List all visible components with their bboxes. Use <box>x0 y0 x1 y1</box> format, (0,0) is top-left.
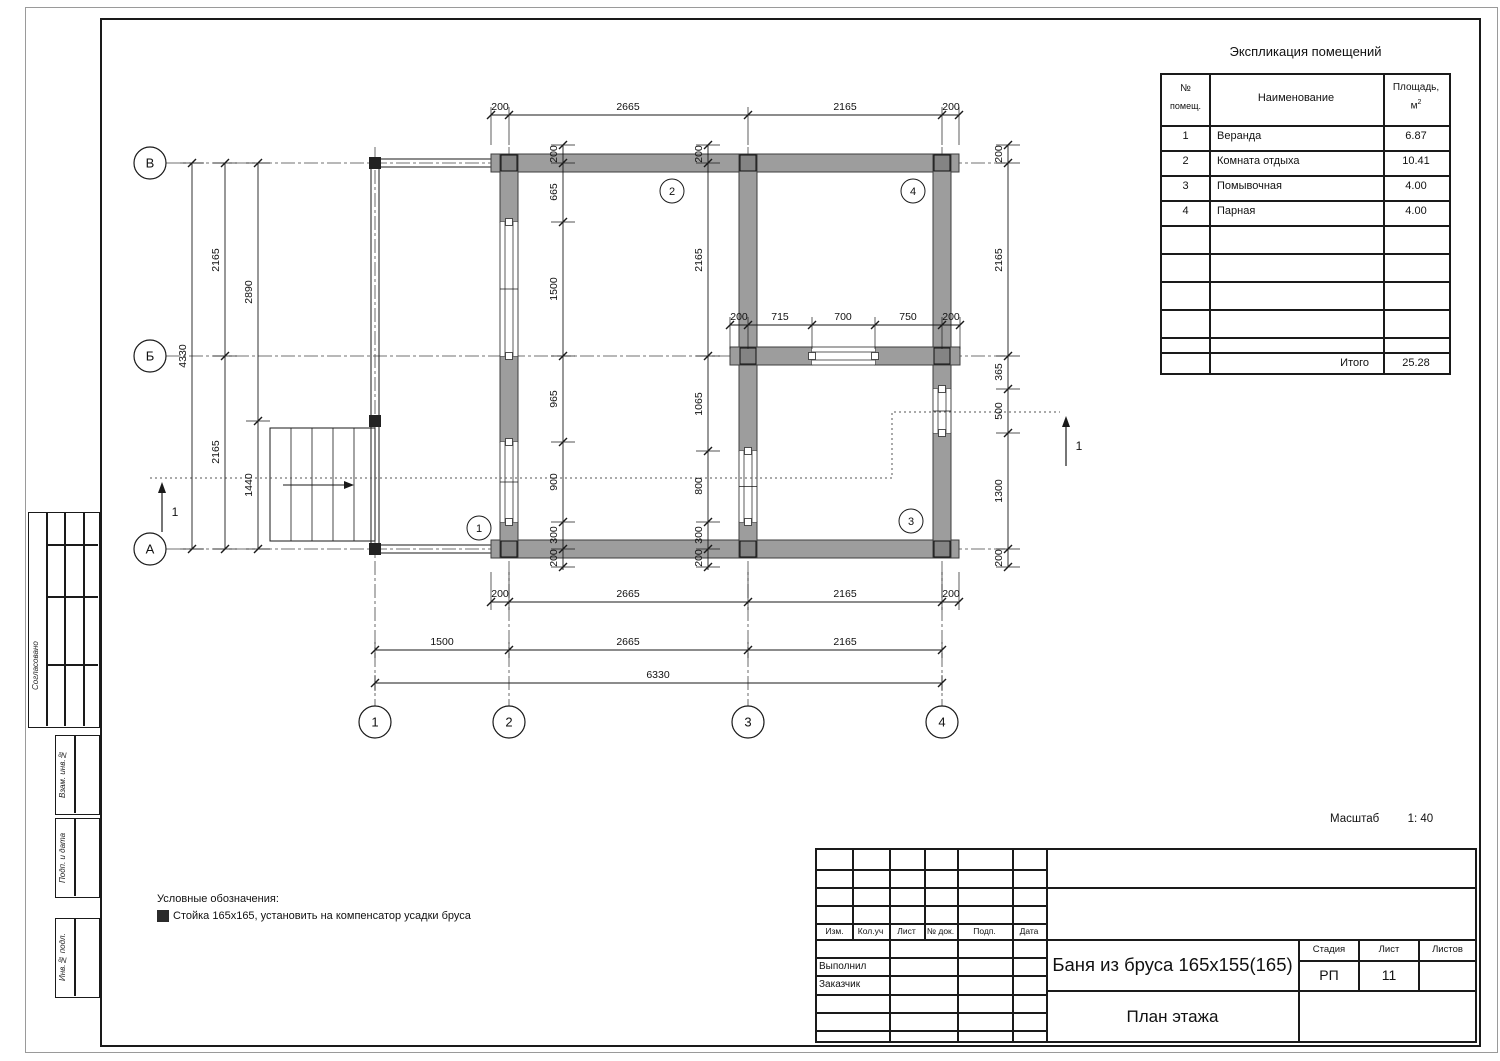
dim-label: 800 <box>693 477 705 495</box>
dim-label: 200 <box>993 549 1005 567</box>
jamb-square <box>506 519 513 526</box>
wall-column <box>934 541 950 557</box>
wall-column <box>934 348 950 364</box>
dim-label: 900 <box>548 473 560 491</box>
dim-label: 500 <box>993 402 1005 420</box>
drawing-sheet: Согласовано Взам. инв.№ Подп. и дата Инв… <box>0 0 1500 1061</box>
wall-column <box>740 348 756 364</box>
wall-segment <box>933 433 951 558</box>
jamb-square <box>506 439 513 446</box>
dim-label: 2165 <box>833 588 857 600</box>
wall-column <box>740 155 756 171</box>
dim-label: 1500 <box>548 277 560 301</box>
stair-arrowhead <box>344 481 354 489</box>
room-number-label: 1 <box>476 523 482 535</box>
veranda-post <box>369 157 381 169</box>
dim-label: 300 <box>693 526 705 544</box>
dim-label: 200 <box>491 101 509 113</box>
dim-label: 1300 <box>993 479 1005 503</box>
jamb-square <box>809 353 816 360</box>
veranda-post <box>369 415 381 427</box>
section-cut-line <box>150 412 1060 478</box>
dim-label: 200 <box>993 145 1005 163</box>
dim-label: 2665 <box>616 588 640 600</box>
axis-bubble-label: 3 <box>744 715 751 730</box>
dim-label: 700 <box>834 311 852 323</box>
wall-segment <box>500 356 518 442</box>
veranda-post <box>369 543 381 555</box>
wall-column <box>501 155 517 171</box>
axis-bubble-label: Б <box>146 349 155 364</box>
jamb-square <box>745 448 752 455</box>
dim-label: 2165 <box>993 248 1005 272</box>
wall-column <box>740 541 756 557</box>
jamb-square <box>939 386 946 393</box>
dim-label: 200 <box>693 549 705 567</box>
dim-label: 200 <box>942 101 960 113</box>
dim-label: 665 <box>548 183 560 201</box>
dim-label: 2890 <box>243 280 255 304</box>
axis-bubble-label: 4 <box>938 715 945 730</box>
wall-column <box>934 155 950 171</box>
dim-label: 2165 <box>833 636 857 648</box>
jamb-square <box>506 219 513 226</box>
dim-label: 200 <box>942 588 960 600</box>
wall-opening <box>812 347 875 365</box>
dim-label: 2165 <box>210 440 222 464</box>
dim-label: 2165 <box>693 248 705 272</box>
dim-label: 2665 <box>616 636 640 648</box>
dim-label: 200 <box>548 145 560 163</box>
axis-bubble-label: 1 <box>371 715 378 730</box>
wall-column <box>501 541 517 557</box>
dim-label: 750 <box>899 311 917 323</box>
jamb-square <box>745 519 752 526</box>
dim-label: 965 <box>548 390 560 408</box>
dim-label: 1440 <box>243 473 255 497</box>
dim-label: 200 <box>693 145 705 163</box>
dim-label: 300 <box>548 526 560 544</box>
section-label: 1 <box>172 505 179 519</box>
axis-bubble-label: А <box>146 542 155 557</box>
dim-label: 715 <box>771 311 789 323</box>
wall-segment <box>739 154 757 451</box>
room-number-label: 4 <box>910 186 916 198</box>
dim-label: 2165 <box>210 248 222 272</box>
dim-label: 1065 <box>693 392 705 416</box>
dim-label: 200 <box>942 311 960 323</box>
dim-label: 200 <box>730 311 748 323</box>
jamb-square <box>872 353 879 360</box>
section-arrowhead <box>158 482 166 493</box>
dim-label: 200 <box>548 549 560 567</box>
dim-label: 2665 <box>616 101 640 113</box>
dim-label: 4330 <box>177 344 189 368</box>
dim-label: 365 <box>993 363 1005 381</box>
dim-label: 6330 <box>646 669 670 681</box>
room-number-label: 2 <box>669 186 675 198</box>
axis-bubble-label: В <box>146 156 155 171</box>
jamb-square <box>939 430 946 437</box>
room-number-label: 3 <box>908 516 914 528</box>
axis-bubble-label: 2 <box>505 715 512 730</box>
section-arrowhead <box>1062 416 1070 427</box>
floor-plan: 1120026652165200200266521652001500266521… <box>0 0 1500 1061</box>
dim-label: 2165 <box>833 101 857 113</box>
dim-label: 1500 <box>430 636 454 648</box>
dim-label: 200 <box>491 588 509 600</box>
jamb-square <box>506 353 513 360</box>
section-label: 1 <box>1076 439 1083 453</box>
